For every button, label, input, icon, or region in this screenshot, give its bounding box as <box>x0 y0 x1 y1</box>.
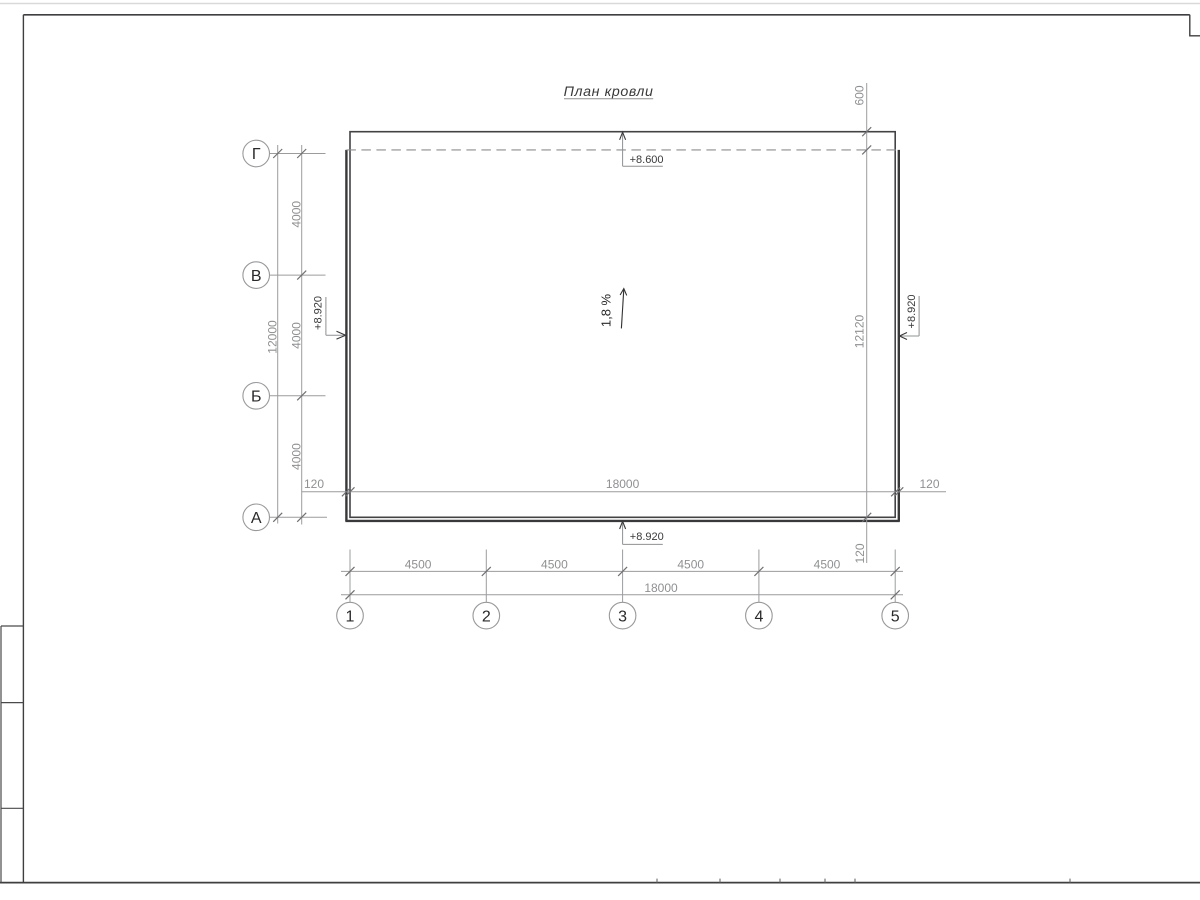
svg-text:1: 1 <box>346 608 355 625</box>
svg-text:18000: 18000 <box>644 581 678 595</box>
svg-text:+8.920: +8.920 <box>630 531 664 543</box>
svg-text:Г: Г <box>252 146 261 163</box>
svg-text:+8.920: +8.920 <box>906 295 918 329</box>
svg-text:4500: 4500 <box>405 557 432 571</box>
svg-text:4: 4 <box>754 608 763 625</box>
svg-text:120: 120 <box>853 543 867 563</box>
svg-text:А: А <box>251 510 262 527</box>
svg-text:12000: 12000 <box>266 320 280 354</box>
svg-text:120: 120 <box>919 477 939 491</box>
svg-text:4500: 4500 <box>677 557 704 571</box>
svg-text:Б: Б <box>251 389 262 406</box>
svg-text:12120: 12120 <box>853 314 867 348</box>
svg-text:4000: 4000 <box>290 201 304 228</box>
svg-text:4000: 4000 <box>290 322 304 349</box>
svg-text:4500: 4500 <box>814 557 841 571</box>
svg-text:18000: 18000 <box>606 477 640 491</box>
svg-text:+8.920: +8.920 <box>313 296 325 330</box>
svg-text:4500: 4500 <box>541 557 568 571</box>
svg-text:600: 600 <box>853 85 867 105</box>
svg-text:В: В <box>251 268 262 285</box>
svg-text:2: 2 <box>482 608 491 625</box>
svg-text:5: 5 <box>891 608 900 625</box>
svg-text:120: 120 <box>304 477 324 491</box>
svg-text:4000: 4000 <box>290 443 304 470</box>
svg-text:План кровли: План кровли <box>564 84 654 100</box>
svg-text:1,8 %: 1,8 % <box>598 293 613 327</box>
svg-text:3: 3 <box>618 608 627 625</box>
svg-text:+8.600: +8.600 <box>630 154 664 166</box>
